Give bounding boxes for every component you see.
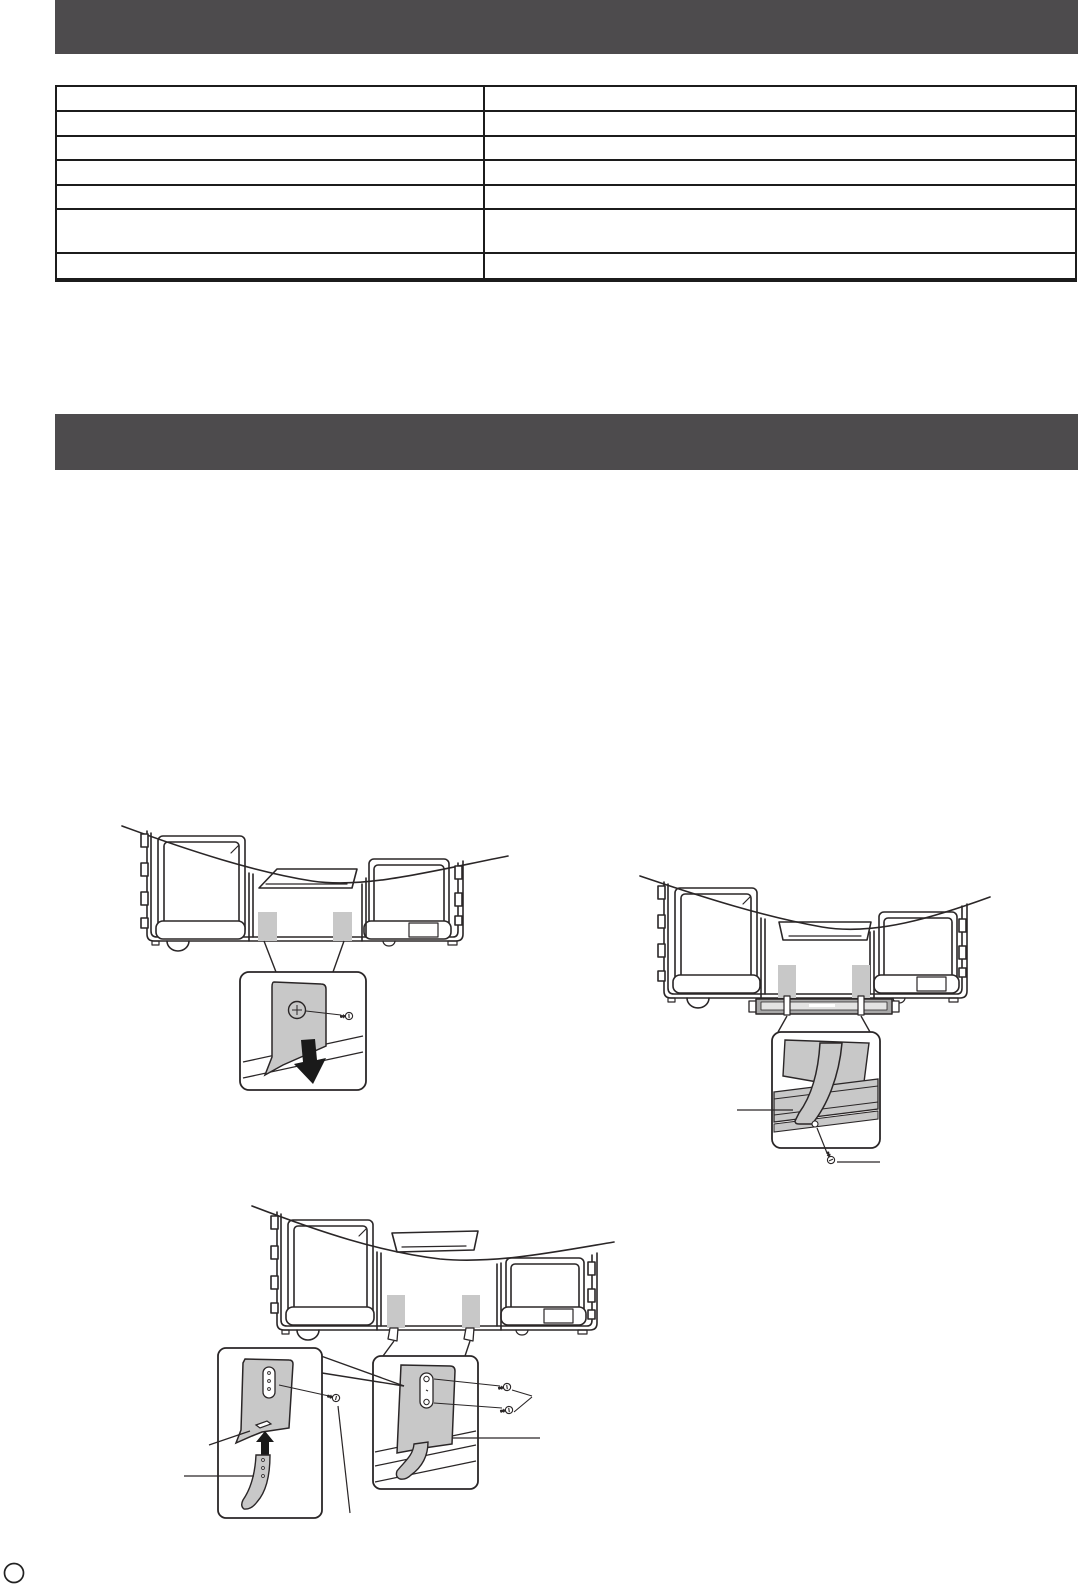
center-recess — [259, 869, 357, 888]
table-cell — [56, 209, 484, 253]
attachment-tab-left — [258, 912, 277, 941]
table-cell — [484, 160, 1076, 185]
attachment-tab-left — [387, 1295, 405, 1328]
table-row — [56, 86, 1076, 111]
page-number-circle — [3, 1561, 27, 1585]
table-row — [56, 136, 1076, 160]
table-cell — [484, 209, 1076, 253]
foot — [167, 941, 189, 951]
display-bottom-outline — [252, 1206, 614, 1340]
diagram-bracket-assembly-step — [182, 1188, 630, 1530]
spec-table — [55, 85, 1077, 282]
table-row — [56, 209, 1076, 253]
table-row — [56, 253, 1076, 280]
table-row — [56, 185, 1076, 209]
section-header-bar-1 — [55, 0, 1078, 54]
table-cell — [56, 160, 484, 185]
table-cell — [56, 253, 484, 280]
bracket-holes — [262, 1459, 265, 1478]
table-row — [56, 160, 1076, 185]
attachment-tab-right — [462, 1295, 480, 1328]
table-cell — [56, 185, 484, 209]
callout-lines — [383, 1341, 470, 1356]
screw-hole — [812, 1121, 818, 1127]
strap-slot — [420, 1373, 433, 1408]
table-cell — [56, 86, 484, 111]
screw-icon — [500, 1406, 513, 1415]
table-cell — [484, 185, 1076, 209]
display-bottom-outline — [640, 876, 990, 1008]
cutaway-wave — [122, 826, 508, 883]
callout-lines — [264, 941, 344, 972]
table-cell — [484, 86, 1076, 111]
center-recess — [392, 1231, 478, 1252]
foot — [297, 1330, 319, 1340]
table-cell — [484, 253, 1076, 280]
center-recess — [779, 922, 871, 940]
table-row — [56, 111, 1076, 136]
table-cell — [56, 136, 484, 160]
callout-lines — [778, 1016, 870, 1032]
diagram-strap-table-fix-step — [628, 856, 1000, 1171]
screw-icon — [824, 1150, 836, 1164]
screw-icon — [326, 1392, 340, 1402]
manual-page — [0, 0, 1078, 1588]
attachment-tab-right — [333, 912, 352, 941]
table-cell — [56, 111, 484, 136]
attachment-tab-right — [852, 965, 870, 998]
diagram-strap-screw-step — [115, 806, 515, 1092]
foot — [687, 998, 709, 1008]
screw-icon — [498, 1383, 511, 1392]
cutaway-wave — [252, 1206, 614, 1260]
table-cell — [484, 111, 1076, 136]
section-header-bar-2 — [55, 414, 1078, 470]
stand-bar — [749, 996, 899, 1015]
attachment-tab-left — [778, 965, 796, 998]
display-bottom-outline — [122, 826, 508, 951]
table-cell — [484, 136, 1076, 160]
leader-line-long — [338, 1406, 350, 1513]
strap-slot — [263, 1367, 275, 1398]
